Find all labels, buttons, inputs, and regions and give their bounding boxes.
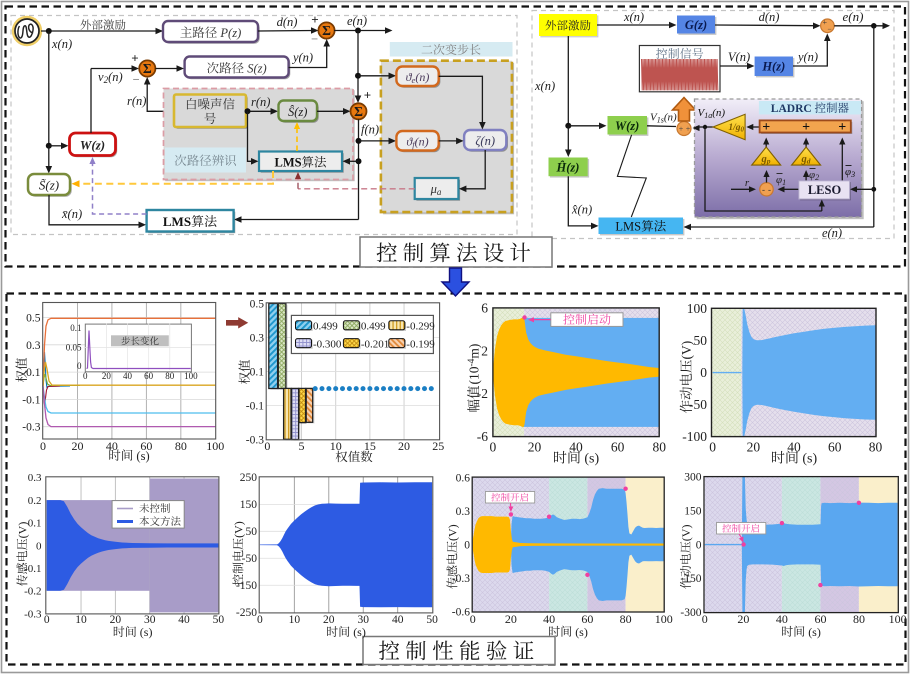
svg-text:0.3: 0.3 — [456, 506, 471, 518]
svg-text:0.2: 0.2 — [28, 495, 42, 507]
svg-text:150: 150 — [684, 506, 702, 518]
svg-text:6: 6 — [481, 301, 488, 316]
svg-text:60: 60 — [144, 371, 154, 381]
svg-text:15: 15 — [364, 439, 376, 453]
svg-text:V(n): V(n) — [728, 50, 750, 64]
svg-text:20: 20 — [737, 612, 749, 626]
svg-text:40: 40 — [543, 612, 555, 626]
svg-text:0.1: 0.1 — [70, 323, 81, 333]
svg-text:+: + — [679, 125, 684, 134]
svg-text:−: − — [827, 25, 831, 34]
svg-text:0: 0 — [700, 365, 707, 380]
svg-text:+: + — [838, 120, 846, 135]
svg-text:-0.299: -0.299 — [406, 321, 435, 333]
svg-text:40: 40 — [776, 612, 788, 626]
svg-text:y(n): y(n) — [291, 51, 313, 65]
svg-text:S̃(z): S̃(z) — [39, 178, 59, 193]
svg-text:(V): (V) — [679, 525, 693, 542]
svg-text:0.5: 0.5 — [250, 298, 265, 310]
svg-text:(V): (V) — [232, 521, 246, 538]
svg-text:ϑf(n): ϑf(n) — [406, 135, 428, 150]
svg-text:V1a(n): V1a(n) — [698, 107, 726, 120]
svg-text:0.6: 0.6 — [456, 472, 471, 484]
svg-text:60: 60 — [611, 440, 625, 455]
svg-text:-: - — [762, 185, 765, 195]
svg-text:-0.3: -0.3 — [22, 422, 40, 434]
svg-text:-: - — [768, 185, 771, 195]
svg-text:0.3: 0.3 — [250, 332, 265, 344]
svg-text:(s): (s) — [572, 625, 588, 639]
svg-text:d(n): d(n) — [277, 15, 298, 29]
svg-text:(s): (s) — [133, 449, 149, 463]
svg-text:r(n): r(n) — [127, 94, 146, 108]
svg-text:20: 20 — [110, 614, 122, 626]
svg-text:f(n): f(n) — [361, 123, 379, 137]
svg-text:10: 10 — [330, 439, 342, 453]
svg-text:0: 0 — [36, 540, 42, 552]
svg-text:W(z): W(z) — [80, 138, 105, 153]
svg-text:Σ: Σ — [354, 104, 363, 119]
svg-text:250: 250 — [240, 472, 258, 484]
svg-text:(s): (s) — [805, 625, 821, 639]
svg-text:(s): (s) — [137, 625, 153, 639]
svg-text:50: 50 — [213, 614, 225, 626]
svg-text:150: 150 — [240, 499, 258, 511]
svg-text:0: 0 — [264, 439, 270, 453]
svg-text:60: 60 — [581, 612, 593, 626]
svg-text:20: 20 — [505, 612, 517, 626]
svg-text:0.1: 0.1 — [26, 367, 41, 379]
svg-text:2: 2 — [481, 343, 488, 358]
svg-text:+: + — [364, 88, 371, 103]
svg-text:0: 0 — [702, 612, 708, 626]
svg-text:10: 10 — [289, 614, 301, 626]
svg-text:-150: -150 — [680, 573, 701, 585]
svg-text:20: 20 — [102, 371, 112, 381]
svg-text:100: 100 — [889, 612, 907, 626]
svg-text:25: 25 — [432, 439, 444, 453]
svg-text:(s): (s) — [581, 452, 600, 467]
svg-text:0: 0 — [464, 539, 470, 551]
svg-text:(s): (s) — [799, 452, 818, 467]
svg-text:x̄(n): x̄(n) — [61, 207, 82, 221]
svg-text:gd: gd — [801, 154, 811, 166]
svg-text:0: 0 — [83, 371, 88, 381]
svg-text:(V): (V) — [16, 522, 30, 539]
svg-text:-0.3: -0.3 — [246, 435, 264, 447]
svg-text:80: 80 — [165, 371, 175, 381]
svg-text:-0.1: -0.1 — [246, 400, 264, 412]
svg-text:80: 80 — [175, 439, 187, 453]
svg-text:+: + — [762, 120, 770, 135]
svg-text:e(n): e(n) — [822, 226, 842, 240]
svg-text:+: + — [802, 120, 810, 135]
svg-text:20: 20 — [528, 440, 542, 455]
svg-text:v2(n): v2(n) — [98, 70, 123, 85]
svg-text:W(z): W(z) — [615, 119, 639, 133]
svg-text:0: 0 — [257, 614, 263, 626]
svg-text:-0.6: -0.6 — [452, 606, 470, 618]
svg-text:1/g0: 1/g0 — [728, 123, 744, 134]
svg-text:-250: -250 — [236, 607, 257, 619]
svg-text:r: r — [745, 177, 750, 189]
svg-text:y(n): y(n) — [796, 50, 818, 64]
svg-text:P(z): P(z) — [217, 26, 241, 40]
svg-text:20: 20 — [747, 440, 761, 455]
svg-text:(s): (s) — [350, 625, 366, 639]
svg-text:-0.2: -0.2 — [24, 586, 41, 598]
svg-text:0.5: 0.5 — [26, 313, 41, 325]
svg-text:0.3: 0.3 — [26, 340, 41, 352]
svg-text:e(n): e(n) — [843, 9, 864, 24]
svg-text:50: 50 — [426, 614, 438, 626]
svg-text:100: 100 — [687, 301, 708, 316]
svg-text:-300: -300 — [680, 607, 701, 619]
svg-text:S(z): S(z) — [244, 62, 267, 76]
svg-text:x̂(n): x̂(n) — [571, 203, 592, 217]
svg-text:ζ(n): ζ(n) — [475, 134, 495, 148]
svg-text:+: + — [311, 12, 318, 27]
svg-text:−: − — [132, 73, 139, 87]
svg-text:0.1: 0.1 — [250, 366, 265, 378]
svg-text:0: 0 — [490, 440, 497, 455]
svg-text:80: 80 — [853, 612, 865, 626]
svg-text:Ĥ(z): Ĥ(z) — [556, 161, 580, 175]
svg-text:-150: -150 — [236, 580, 257, 592]
svg-text:80: 80 — [652, 440, 666, 455]
svg-text:40: 40 — [123, 371, 133, 381]
svg-text:-0.201: -0.201 — [361, 338, 389, 350]
svg-text:0.499: 0.499 — [361, 321, 386, 333]
svg-text:80: 80 — [620, 612, 632, 626]
svg-text:20: 20 — [398, 439, 410, 453]
svg-text:40: 40 — [178, 614, 190, 626]
svg-text:gp: gp — [761, 154, 771, 166]
svg-text:−: − — [311, 32, 318, 46]
svg-text:-0.1: -0.1 — [22, 394, 40, 406]
svg-text:LADRC: LADRC — [771, 103, 815, 115]
svg-text:100: 100 — [206, 439, 224, 453]
svg-text:20: 20 — [323, 614, 335, 626]
svg-text:LESO: LESO — [808, 183, 842, 197]
svg-text:e(n): e(n) — [347, 14, 367, 28]
svg-text:-0.3: -0.3 — [24, 608, 42, 620]
svg-text:-100: -100 — [682, 429, 707, 444]
svg-text:(V): (V) — [679, 341, 694, 360]
svg-text:+: + — [686, 125, 691, 134]
svg-text:H(z): H(z) — [761, 60, 785, 74]
svg-text:-50: -50 — [242, 553, 258, 565]
svg-text:-6: -6 — [477, 429, 488, 444]
svg-text:V1s(n): V1s(n) — [650, 112, 677, 125]
svg-text:0: 0 — [40, 439, 46, 453]
svg-text:-0.3: -0.3 — [452, 573, 470, 585]
svg-text:40: 40 — [392, 614, 404, 626]
svg-text:+: + — [131, 51, 138, 66]
svg-text:ϑe(n): ϑe(n) — [406, 70, 430, 85]
svg-text:LMS: LMS — [163, 214, 191, 229]
svg-text:0.1: 0.1 — [28, 518, 42, 530]
svg-text:0: 0 — [44, 614, 50, 626]
svg-text:-0.300: -0.300 — [313, 338, 342, 350]
svg-text:50: 50 — [246, 526, 258, 538]
svg-text:Σ: Σ — [322, 23, 331, 38]
svg-text:0: 0 — [77, 361, 82, 371]
svg-text:0.3: 0.3 — [28, 472, 42, 484]
svg-text:x(n): x(n) — [623, 10, 644, 24]
svg-text:Ŝ(z): Ŝ(z) — [288, 105, 307, 119]
svg-text:0: 0 — [709, 440, 716, 455]
svg-text:0: 0 — [470, 612, 476, 626]
svg-text:0.499: 0.499 — [313, 321, 338, 333]
svg-text:300: 300 — [684, 472, 702, 484]
svg-text:0: 0 — [696, 539, 702, 551]
svg-text:100: 100 — [655, 612, 673, 626]
svg-text:d(n): d(n) — [759, 10, 780, 24]
svg-text:Σ: Σ — [143, 61, 152, 76]
svg-text:(V): (V) — [446, 524, 460, 541]
svg-text:60: 60 — [828, 440, 842, 455]
svg-text:20: 20 — [71, 439, 83, 453]
svg-text:LMS: LMS — [615, 220, 641, 234]
svg-text:x(n): x(n) — [51, 37, 72, 51]
svg-text:r(n): r(n) — [251, 95, 270, 109]
svg-text:100: 100 — [184, 371, 198, 381]
svg-text:-50: -50 — [689, 397, 707, 412]
svg-text:10: 10 — [75, 614, 87, 626]
svg-text:-0.199: -0.199 — [406, 338, 435, 350]
svg-text:50: 50 — [694, 333, 708, 348]
svg-text:G(z): G(z) — [685, 18, 707, 32]
svg-text:0.05: 0.05 — [66, 342, 82, 352]
svg-text:LMS: LMS — [275, 156, 302, 170]
svg-text:5: 5 — [299, 439, 305, 453]
svg-text:x(n): x(n) — [534, 79, 555, 93]
svg-text:80: 80 — [869, 440, 883, 455]
svg-text:60: 60 — [814, 612, 826, 626]
